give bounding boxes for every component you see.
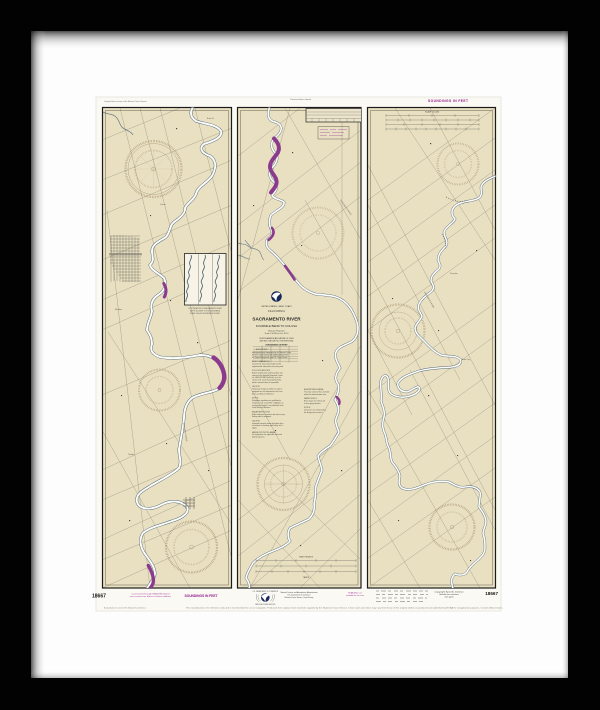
svg-text:within the administration area: within the administration area.	[304, 393, 327, 396]
svg-text:YARDS: YARDS	[303, 576, 310, 579]
svg-text:Colusa: Colusa	[160, 204, 166, 206]
svg-text:Local Notice to Mariners.: Local Notice to Mariners.	[252, 406, 271, 409]
svg-text:FOURMILE BEND TO COLUSA: FOURMILE BEND TO COLUSA	[256, 324, 297, 328]
svg-text:CALIFORNIA: CALIFORNIA	[268, 310, 285, 313]
svg-text:SOUNDINGS IN FEET: SOUNDINGS IN FEET	[428, 99, 468, 103]
svg-text:Corrected through NM/LNM dated: Corrected through NM/LNM dated	[132, 592, 170, 595]
svg-text:chart agents: chart agents	[444, 596, 453, 599]
svg-text:SACRAMENTO RIVER: SACRAMENTO RIVER	[252, 317, 301, 322]
svg-text:This reproduction is for refer: This reproduction is for reference only …	[186, 607, 504, 610]
svg-text:18667: 18667	[485, 591, 498, 596]
svg-text:SOUNDINGS IN FEET: SOUNDINGS IN FEET	[265, 345, 288, 347]
svg-text:edges.: edges.	[252, 428, 258, 430]
svg-text:(WORLD GEODETIC SYSTEM 1984): (WORLD GEODETIC SYSTEM 1984)	[260, 340, 294, 342]
svg-text:to local gauge datums.: to local gauge datums.	[304, 402, 322, 405]
svg-text:NOAA ENCs are: NOAA ENCs are	[348, 591, 362, 594]
svg-text:available for this area: available for this area	[346, 594, 365, 597]
svg-text:Available from authorized: Available from authorized	[439, 593, 458, 596]
svg-text:See Local Notice to Mariners.: See Local Notice to Mariners.	[252, 392, 275, 395]
svg-text:Tisdale: Tisdale	[128, 454, 134, 456]
svg-text:A reproduction of a chart of t: A reproduction of a chart of the Nationa…	[104, 607, 146, 610]
svg-text:see reverse for dates of lates: see reverse for dates of latest editions	[130, 595, 171, 598]
svg-text:STATUTE MILES: STATUTE MILES	[299, 556, 314, 559]
svg-text:National Oceanic and Atmospher: National Oceanic and Atmospheric Adminis…	[281, 591, 318, 594]
svg-text:National Ocean Service, Coast: National Ocean Service, Coast Survey	[285, 596, 314, 599]
svg-text:U.S. Department of Commerce: U.S. Department of Commerce	[287, 593, 310, 596]
svg-text:Princeton: Princeton	[450, 272, 458, 275]
svg-text:Butte Sl.: Butte Sl.	[207, 117, 214, 120]
svg-text:federal agencies.: federal agencies.	[252, 436, 265, 439]
svg-text:SCALE 1:40,000 SOUNDINGS IN FE: SCALE 1:40,000 SOUNDINGS IN FEET	[190, 312, 220, 315]
svg-text:floating aids to navigation.: floating aids to navigation.	[252, 415, 272, 418]
svg-text:SOUNDINGS IN FEET: SOUNDINGS IN FEET	[185, 594, 218, 598]
svg-text:NORTH AMERICAN DATUM OF 1983: NORTH AMERICAN DATUM OF 1983	[260, 337, 295, 340]
svg-text:Meridian: Meridian	[115, 309, 122, 311]
svg-text:phone communication is impossi: phone communication is impossible.	[252, 381, 280, 384]
svg-text:UNITED STATES - WEST COAST: UNITED STATES - WEST COAST	[261, 305, 292, 308]
svg-text:the design water surface.: the design water surface.	[304, 411, 323, 414]
svg-text:SCALE 1:10,000: SCALE 1:10,000	[425, 111, 439, 114]
svg-text:Copyright Specific Domain: Copyright Specific Domain	[435, 591, 464, 594]
svg-text:supplemental information conce: supplemental information concerning aids…	[252, 365, 284, 368]
svg-text:Compiled from surveys of the N: Compiled from surveys of the National Oc…	[104, 100, 147, 103]
svg-text:Butte City: Butte City	[462, 358, 470, 361]
svg-text:18667: 18667	[92, 594, 106, 600]
svg-text:Scale 1:10,000 at Lat. 39 10: Scale 1:10,000 at Lat. 39 10	[265, 332, 289, 335]
